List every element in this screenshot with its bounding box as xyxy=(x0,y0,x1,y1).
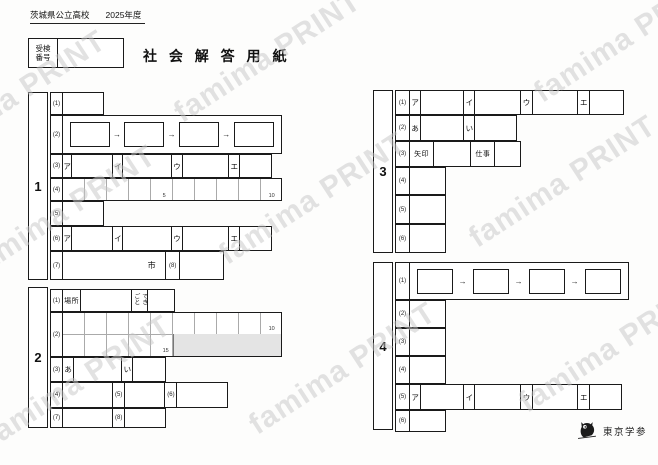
char-count-15: 15 xyxy=(163,349,169,355)
answer-box xyxy=(474,115,517,141)
sequence-answer-box: → → → xyxy=(62,115,282,154)
s1-row-6: (6) ア イ ウ エ xyxy=(50,226,272,251)
answer-box xyxy=(589,384,622,410)
answer-box xyxy=(473,269,509,294)
event-label-text: できごと xyxy=(132,293,148,309)
answer-box xyxy=(179,251,224,280)
place-label: 場所 xyxy=(62,289,82,312)
answer-box-city: 市 xyxy=(62,251,167,280)
owl-logo-icon xyxy=(577,420,598,441)
publisher-name: 東京学参 xyxy=(603,424,647,438)
answer-box xyxy=(122,226,172,251)
event-label: できごと xyxy=(131,289,149,312)
answer-sheet-page: { "header": { "school": "茨城県公立高校", "year… xyxy=(0,0,658,465)
answer-box xyxy=(70,122,110,147)
answer-box xyxy=(124,382,166,408)
answer-box xyxy=(147,289,175,312)
answer-box xyxy=(239,226,272,251)
s3-row-1: (1) ア イ ウ エ xyxy=(395,90,624,115)
char-count-10: 10 xyxy=(269,327,275,333)
answer-box xyxy=(73,357,122,382)
arrow-right-icon: → xyxy=(222,130,230,139)
section-1-number: 1 xyxy=(28,92,48,280)
answer-box xyxy=(532,90,579,115)
s2-row-3: (3) あ い xyxy=(50,357,166,382)
examinee-label-line1: 受検 xyxy=(36,44,51,53)
arrow-right-icon: → xyxy=(571,277,579,286)
answer-box xyxy=(62,408,114,428)
examinee-number-label: 受検 番号 xyxy=(28,38,58,68)
answer-box xyxy=(62,382,114,408)
examinee-number-field xyxy=(57,38,124,68)
answer-box xyxy=(124,408,166,428)
answer-box xyxy=(239,154,272,178)
answer-box xyxy=(417,269,453,294)
arrow-right-icon: → xyxy=(515,277,523,286)
s4-row-2: (2) xyxy=(395,300,446,328)
s1-row-4: (4) 5 10 xyxy=(50,178,282,201)
s3-row-6: (6) xyxy=(395,224,446,253)
s3-row-3: (3) 矢印 仕事 xyxy=(395,141,521,167)
answer-box xyxy=(409,167,446,195)
answer-box xyxy=(179,122,219,147)
header-school-year: 茨城県公立高校 2025年度 xyxy=(30,9,145,24)
publisher-credit: 東京学参 xyxy=(577,420,647,441)
answer-box xyxy=(71,154,113,178)
city-suffix-label: 市 xyxy=(148,260,156,271)
character-grid-two-rows: 10 15 xyxy=(62,312,282,357)
answer-box xyxy=(409,300,446,328)
answer-box xyxy=(420,384,464,410)
answer-box xyxy=(62,92,104,115)
s4-row-3: (3) xyxy=(395,328,446,356)
answer-box xyxy=(409,410,446,432)
s1-row-3: (3) ア イ ウ エ xyxy=(50,154,272,178)
answer-box xyxy=(409,328,446,356)
answer-box xyxy=(494,141,521,167)
answer-box xyxy=(409,356,446,384)
answer-box xyxy=(585,269,621,294)
char-count-5: 5 xyxy=(163,194,166,200)
examinee-number-box: 受検 番号 xyxy=(28,38,124,68)
s1-row-2: (2) → → → xyxy=(50,115,282,154)
school-year: 2025年度 xyxy=(106,9,142,21)
s3-row-2: (2) あ い xyxy=(395,115,517,141)
s1-row-5: (5) xyxy=(50,201,104,226)
s1-row-1: (1) xyxy=(50,92,104,115)
char-count-10: 10 xyxy=(269,194,275,200)
answer-box xyxy=(71,226,113,251)
s2-row-4: (4) (5) (6) xyxy=(50,382,228,408)
answer-box xyxy=(132,357,166,382)
answer-box xyxy=(182,226,230,251)
answer-box xyxy=(409,195,446,224)
s1-row-7: (7) 市 (8) xyxy=(50,251,224,280)
answer-box xyxy=(420,90,464,115)
answer-box xyxy=(409,224,446,253)
answer-box xyxy=(529,269,565,294)
character-grid: 5 10 xyxy=(62,178,282,201)
answer-box xyxy=(176,382,228,408)
school-name: 茨城県公立高校 xyxy=(30,9,90,21)
answer-box xyxy=(124,122,164,147)
s4-row-6: (6) xyxy=(395,410,446,432)
answer-box xyxy=(474,90,521,115)
answer-box xyxy=(182,154,230,178)
s4-row-1: (1) → → → xyxy=(395,262,629,300)
section-4-number: 4 xyxy=(373,262,393,430)
answer-box xyxy=(474,384,521,410)
answer-box xyxy=(420,115,464,141)
sequence-answer-box: → → → xyxy=(409,262,629,300)
s4-row-4: (4) xyxy=(395,356,446,384)
answer-box xyxy=(62,201,104,226)
examinee-label-line2: 番号 xyxy=(36,53,51,62)
s3-row-5: (5) xyxy=(395,195,446,224)
shaded-unused-area xyxy=(173,334,281,356)
arrow-right-icon: → xyxy=(459,277,467,286)
work-label: 仕事 xyxy=(470,141,496,167)
s2-row-1: (1) 場所 できごと xyxy=(50,289,175,312)
section-3-number: 3 xyxy=(373,90,393,253)
answer-box xyxy=(122,154,172,178)
s4-row-5: (5) ア イ ウ エ xyxy=(395,384,622,410)
s2-row-5: (7) (8) xyxy=(50,408,166,428)
s2-row-2: (2) 10 15 xyxy=(50,312,282,357)
arrow-right-icon: → xyxy=(113,130,121,139)
arrow-word-label: 矢印 xyxy=(409,141,435,167)
answer-box xyxy=(433,141,471,167)
s3-row-4: (4) xyxy=(395,167,446,195)
arrow-right-icon: → xyxy=(168,130,176,139)
answer-box xyxy=(589,90,624,115)
answer-box xyxy=(80,289,132,312)
page-title: 社 会 解 答 用 紙 xyxy=(143,46,290,66)
section-2-number: 2 xyxy=(28,287,48,428)
answer-box xyxy=(532,384,579,410)
answer-box xyxy=(234,122,274,147)
